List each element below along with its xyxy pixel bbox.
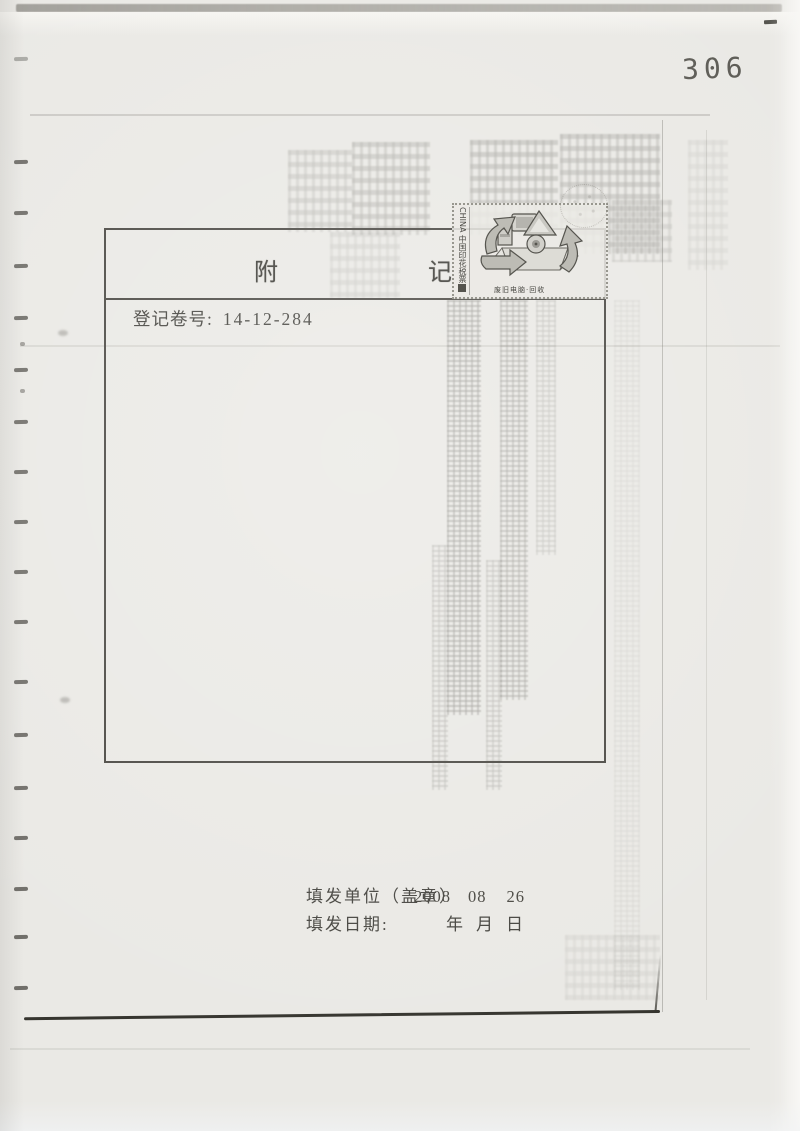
bleed-through-patch <box>612 200 672 262</box>
binding-mark <box>14 620 28 624</box>
binding-mark <box>14 986 28 990</box>
binding-mark <box>14 160 28 164</box>
stamped-date: 20080826 <box>414 887 525 907</box>
appendix-title-right: 记 <box>428 252 452 287</box>
binding-mark <box>14 211 28 215</box>
scan-top-highlight <box>0 12 800 36</box>
binding-mark <box>14 786 28 790</box>
scanned-document-page: 306 附 记 登记卷号:14-12-284 <box>0 0 800 1131</box>
registration-number: 14-12-284 <box>223 309 314 329</box>
binding-mark <box>14 520 28 524</box>
stamp-caption: 废旧电脑·回收 <box>494 285 545 295</box>
year-unit: 年 <box>446 915 463 934</box>
binding-mark <box>14 836 28 840</box>
binding-mark <box>14 733 28 737</box>
smudge <box>58 330 68 336</box>
bleed-through-patch <box>688 140 728 270</box>
scan-top-edge <box>16 4 782 12</box>
faint-rule-line <box>30 114 710 116</box>
binding-dot <box>20 389 25 393</box>
sheet-edge-line <box>24 1010 660 1020</box>
binding-mark <box>14 680 28 684</box>
stamp-country-label: CHINA 中国印花税票 <box>455 207 470 295</box>
binding-mark <box>14 570 28 574</box>
day-unit: 日 <box>506 915 523 934</box>
appendix-box: 附 记 登记卷号:14-12-284 <box>104 228 606 763</box>
scan-right-margin <box>780 0 800 1131</box>
stamped-day: 26 <box>507 887 526 906</box>
binding-mark <box>14 470 28 474</box>
binding-mark <box>14 316 28 320</box>
bleed-through-column <box>614 300 640 990</box>
stamp-denomination-block <box>458 284 466 292</box>
corner-mark <box>764 20 777 24</box>
registration-number-line: 登记卷号:14-12-284 <box>133 306 314 331</box>
binding-mark <box>14 57 28 61</box>
smudge <box>60 697 70 703</box>
binding-mark <box>14 264 28 268</box>
appendix-title-left: 附 <box>254 252 278 287</box>
binding-mark <box>14 935 28 939</box>
date-unit-labels: 年月日 <box>446 910 523 935</box>
bleed-through-patch <box>352 142 430 235</box>
binding-dot <box>20 342 25 346</box>
binding-mark <box>14 368 28 372</box>
stamped-year: 2008 <box>414 887 451 906</box>
stamped-month: 08 <box>468 887 487 906</box>
bleed-through-patch <box>288 150 352 232</box>
postmark-icon <box>560 184 608 228</box>
registration-label: 登记卷号: <box>133 309 213 329</box>
faint-rule-line <box>10 1048 750 1050</box>
scan-bottom-margin <box>0 1101 800 1131</box>
issue-date-label: 填发日期: <box>306 910 458 938</box>
binding-mark <box>14 887 28 891</box>
page-number: 306 <box>681 51 748 86</box>
bleed-through-patch <box>565 935 660 1000</box>
month-unit: 月 <box>476 915 493 934</box>
binding-mark <box>14 420 28 424</box>
